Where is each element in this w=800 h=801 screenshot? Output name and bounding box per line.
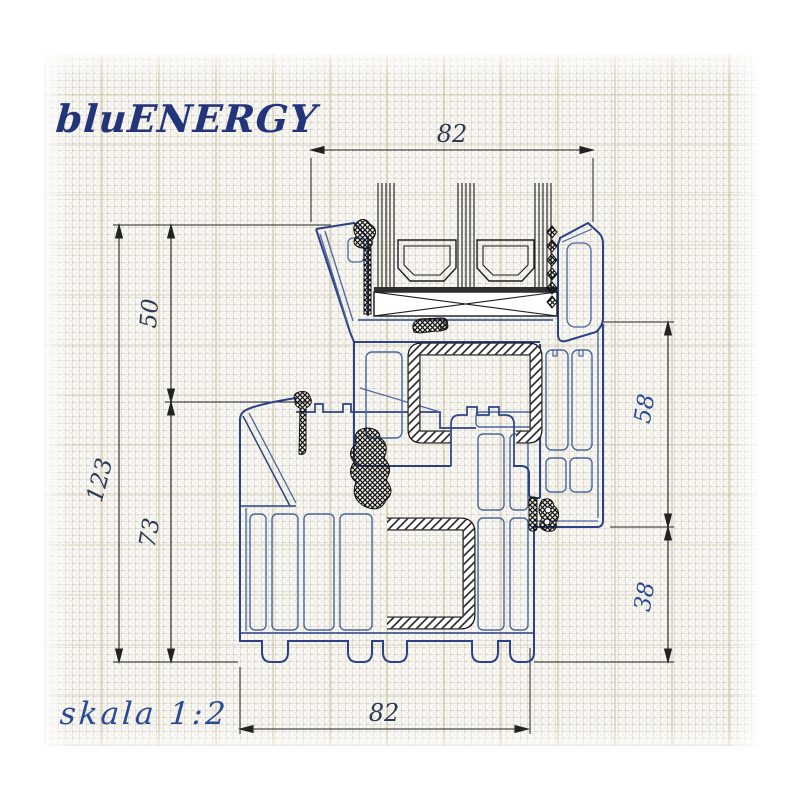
glass-pane-left bbox=[378, 183, 394, 288]
glass-pane-middle bbox=[458, 183, 474, 288]
dim-right-lower: 38 bbox=[630, 580, 661, 613]
frame-profile bbox=[240, 324, 603, 662]
dim-bottom-width: 82 bbox=[369, 699, 400, 727]
dim-top-width: 82 bbox=[437, 120, 468, 148]
centre-seal-gasket bbox=[350, 428, 391, 509]
dim-left-lower: 73 bbox=[135, 516, 166, 549]
dim-left-total: 123 bbox=[82, 456, 118, 505]
junction-gasket-bar bbox=[529, 497, 537, 531]
glazing-gasket-left bbox=[354, 220, 376, 249]
steel-reinforcement-sash bbox=[414, 349, 536, 437]
profile-cross-section-drawing: 82 82 123 50 73 58 38 bbox=[0, 0, 800, 801]
drawing-sheet: bluENERGY skala 1:2 bbox=[0, 0, 800, 801]
glazing-unit bbox=[374, 183, 557, 316]
frame-outer-gasket bbox=[294, 392, 311, 455]
junction-gasket bbox=[539, 499, 559, 531]
dim-right-upper: 58 bbox=[630, 392, 661, 425]
gaskets bbox=[294, 220, 558, 532]
dim-left-upper: 50 bbox=[136, 298, 164, 329]
dimension-labels: 82 82 123 50 73 58 38 bbox=[82, 120, 660, 727]
steel-reinforcement-frame bbox=[387, 524, 469, 623]
